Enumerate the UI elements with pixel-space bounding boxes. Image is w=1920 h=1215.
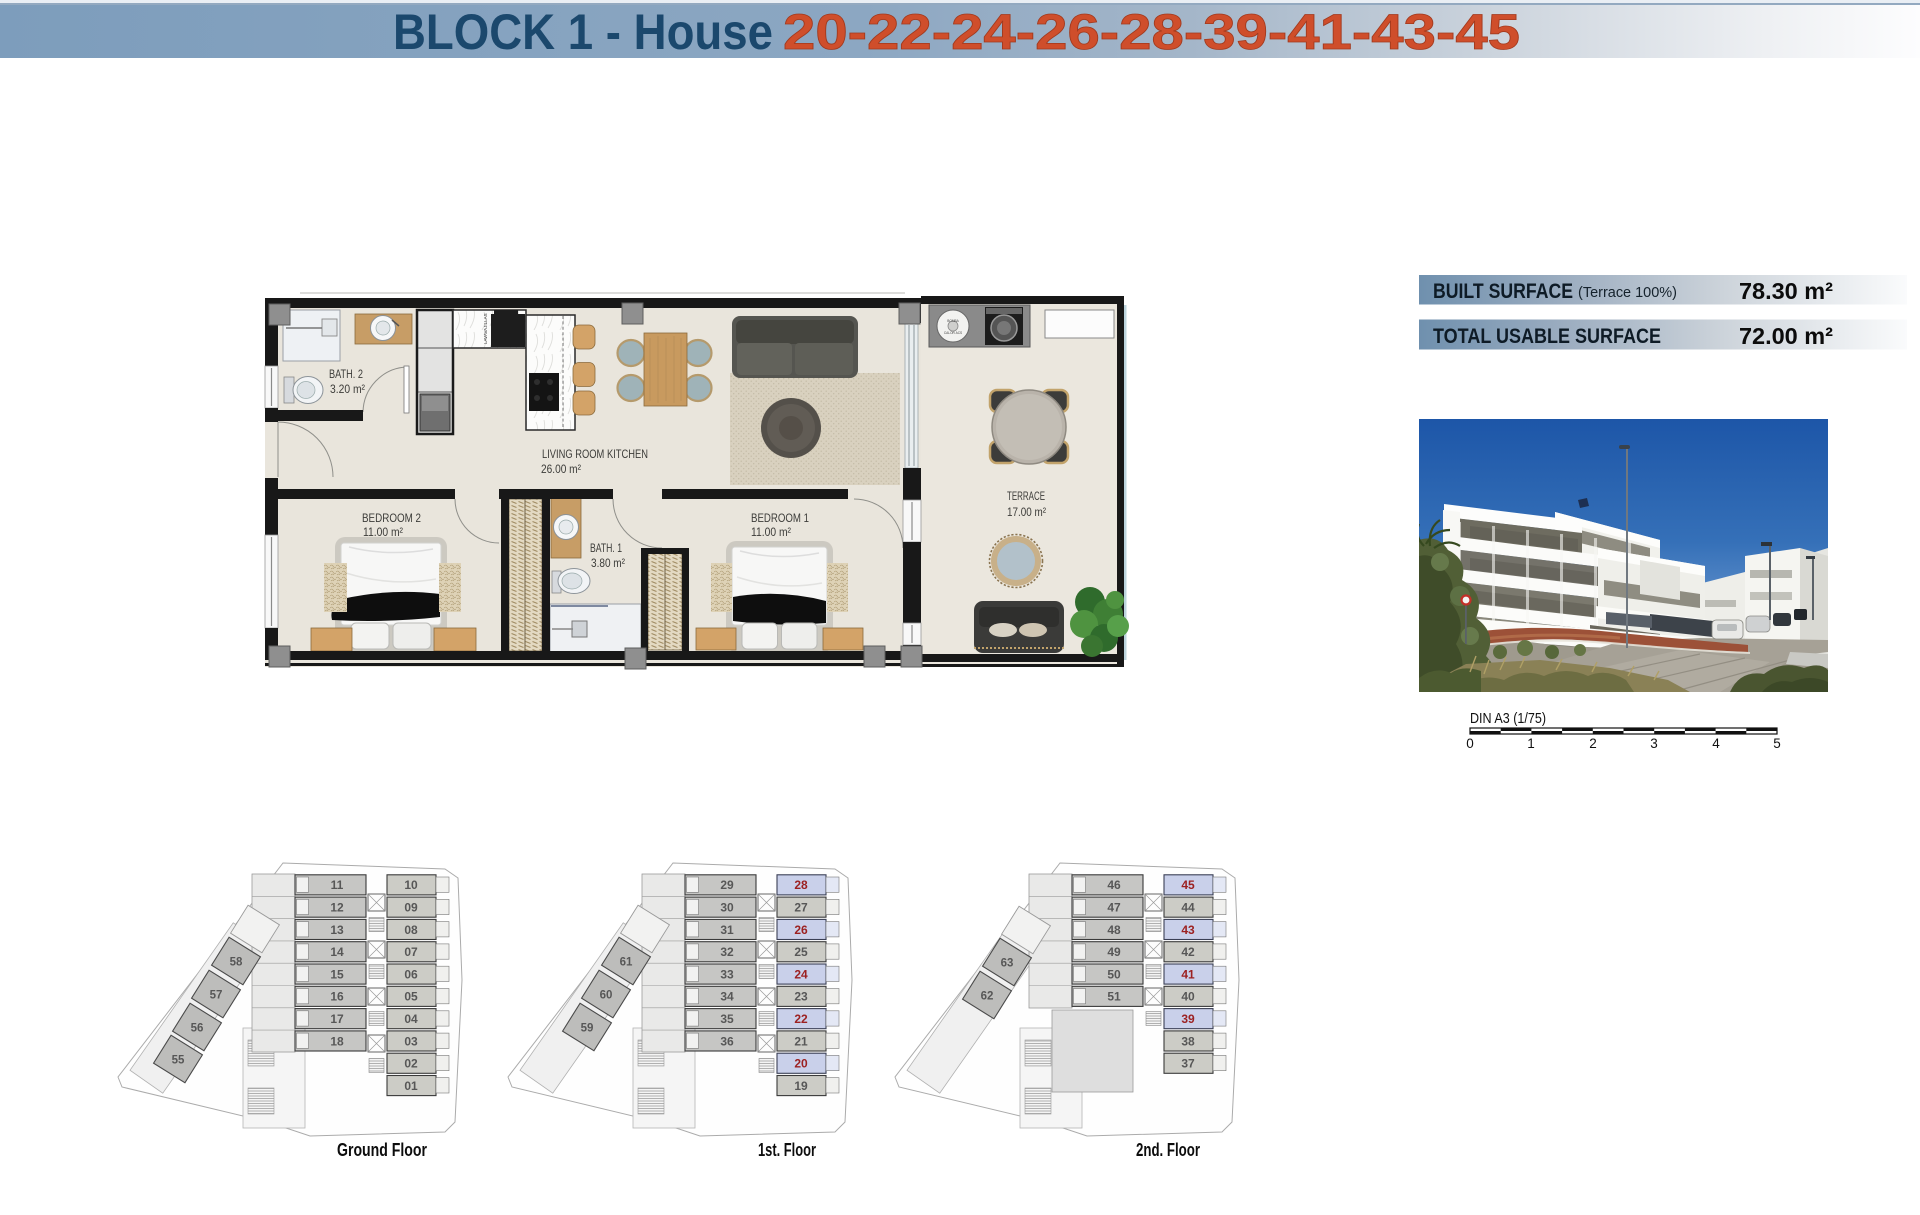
svg-text:35: 35 <box>720 1012 734 1026</box>
svg-text:24: 24 <box>794 967 808 981</box>
svg-text:33: 33 <box>720 967 734 981</box>
svg-text:45: 45 <box>1181 878 1195 892</box>
svg-text:37: 37 <box>1181 1057 1195 1071</box>
svg-text:LIVING ROOM KITCHEN: LIVING ROOM KITCHEN <box>542 447 648 461</box>
svg-text:BEDROOM 2: BEDROOM 2 <box>362 511 421 525</box>
svg-text:Ground Floor: Ground Floor <box>337 1139 427 1160</box>
svg-text:46: 46 <box>1107 878 1121 892</box>
svg-text:1: 1 <box>1527 736 1535 751</box>
svg-text:LAVAVAJILLAS: LAVAVAJILLAS <box>483 313 488 344</box>
svg-text:15: 15 <box>330 967 344 981</box>
svg-text:(Terrace 100%): (Terrace 100%) <box>1578 284 1677 301</box>
svg-text:28: 28 <box>794 878 808 892</box>
svg-text:BATH. 1: BATH. 1 <box>590 541 622 555</box>
svg-text:27: 27 <box>794 901 808 915</box>
svg-text:62: 62 <box>981 991 994 1003</box>
svg-text:TERRACE: TERRACE <box>1007 489 1045 503</box>
svg-text:44: 44 <box>1181 901 1195 915</box>
svg-text:10: 10 <box>404 878 418 892</box>
svg-text:BUILT SURFACE: BUILT SURFACE <box>1433 279 1573 303</box>
svg-text:38: 38 <box>1181 1034 1195 1048</box>
svg-text:13: 13 <box>330 923 344 937</box>
svg-text:TOTAL USABLE SURFACE: TOTAL USABLE SURFACE <box>1433 324 1661 348</box>
svg-text:3: 3 <box>1650 736 1658 751</box>
svg-text:57: 57 <box>210 990 223 1002</box>
svg-text:16: 16 <box>330 990 344 1004</box>
svg-text:56: 56 <box>191 1023 204 1035</box>
svg-text:20: 20 <box>794 1057 808 1071</box>
svg-text:3.80 m²: 3.80 m² <box>591 556 625 570</box>
svg-text:02: 02 <box>404 1057 418 1071</box>
svg-text:61: 61 <box>620 957 633 969</box>
svg-text:01: 01 <box>404 1079 418 1093</box>
svg-text:04: 04 <box>404 1012 418 1026</box>
svg-text:50: 50 <box>1107 967 1121 981</box>
svg-text:09: 09 <box>404 901 418 915</box>
svg-text:30: 30 <box>720 901 734 915</box>
svg-text:59: 59 <box>581 1023 594 1035</box>
svg-text:03: 03 <box>404 1034 418 1048</box>
svg-text:1st. Floor: 1st. Floor <box>758 1139 816 1160</box>
svg-text:BOMBA: BOMBA <box>947 319 959 323</box>
svg-text:34: 34 <box>720 990 734 1004</box>
svg-text:43: 43 <box>1181 923 1195 937</box>
svg-text:51: 51 <box>1107 990 1121 1004</box>
svg-text:49: 49 <box>1107 945 1121 959</box>
svg-text:14: 14 <box>330 945 344 959</box>
svg-text:0: 0 <box>1466 736 1474 751</box>
svg-text:17: 17 <box>330 1012 344 1026</box>
svg-text:06: 06 <box>404 967 418 981</box>
svg-text:40: 40 <box>1181 990 1195 1004</box>
svg-text:5: 5 <box>1773 736 1781 751</box>
svg-text:2nd. Floor: 2nd. Floor <box>1136 1139 1200 1160</box>
svg-text:08: 08 <box>404 923 418 937</box>
svg-text:29: 29 <box>720 878 734 892</box>
svg-text:12: 12 <box>330 901 344 915</box>
svg-text:11: 11 <box>331 878 344 892</box>
svg-text:25: 25 <box>794 945 808 959</box>
svg-text:55: 55 <box>172 1055 185 1067</box>
svg-text:19: 19 <box>794 1079 808 1093</box>
svg-text:72.00 m²: 72.00 m² <box>1739 323 1833 349</box>
svg-text:32: 32 <box>720 945 734 959</box>
svg-text:41: 41 <box>1181 967 1195 981</box>
svg-text:CALOR ACS: CALOR ACS <box>944 331 962 335</box>
svg-text:26.00 m²: 26.00 m² <box>541 462 581 476</box>
svg-text:47: 47 <box>1107 901 1121 915</box>
svg-text:07: 07 <box>404 945 418 959</box>
svg-text:39: 39 <box>1181 1012 1195 1026</box>
svg-text:22: 22 <box>794 1012 808 1026</box>
svg-text:BATH. 2: BATH. 2 <box>329 367 363 381</box>
svg-text:48: 48 <box>1107 923 1121 937</box>
svg-text:63: 63 <box>1001 958 1014 970</box>
svg-text:17.00 m²: 17.00 m² <box>1007 505 1046 519</box>
svg-text:11.00 m²: 11.00 m² <box>751 525 791 539</box>
svg-text:78.30 m²: 78.30 m² <box>1739 278 1833 304</box>
svg-text:21: 21 <box>794 1034 808 1048</box>
svg-text:58: 58 <box>230 957 243 969</box>
svg-text:4: 4 <box>1712 736 1720 751</box>
svg-text:2: 2 <box>1589 736 1597 751</box>
svg-text:11.00 m²: 11.00 m² <box>363 525 403 539</box>
svg-text:42: 42 <box>1181 945 1195 959</box>
svg-text:36: 36 <box>720 1034 734 1048</box>
svg-text:31: 31 <box>720 923 734 937</box>
svg-text:3.20 m²: 3.20 m² <box>330 382 365 396</box>
svg-text:60: 60 <box>600 990 613 1002</box>
svg-text:05: 05 <box>404 990 418 1004</box>
svg-text:BEDROOM 1: BEDROOM 1 <box>751 511 809 525</box>
svg-text:BLOCK 1 - House20-22-24-26-28-: BLOCK 1 - House20-22-24-26-28-39-41-43-4… <box>393 4 1520 60</box>
svg-text:26: 26 <box>794 923 808 937</box>
svg-text:DIN A3 (1/75): DIN A3 (1/75) <box>1470 711 1546 727</box>
svg-text:23: 23 <box>794 990 808 1004</box>
svg-text:18: 18 <box>330 1034 344 1048</box>
